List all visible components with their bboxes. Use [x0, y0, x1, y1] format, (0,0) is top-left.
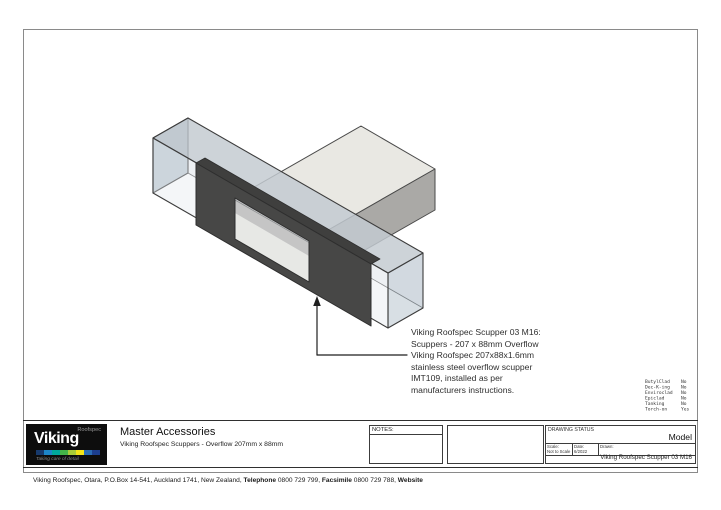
annotation-line: stainless steel overflow scupper — [411, 362, 581, 374]
drawn-label: Drawn: — [600, 445, 695, 450]
notes-box: NOTES: — [369, 425, 443, 464]
date-value: 6/2022 — [574, 449, 599, 454]
drawing-status-box: DRAWING STATUS Model Scale: Not to Scale… — [545, 425, 696, 464]
logo-color-swatch — [36, 450, 44, 455]
title-block: Roofspec Viking Taking care of detail Ma… — [23, 420, 698, 468]
annotation-line: manufacturers instructions. — [411, 385, 581, 397]
footer-address: Viking Roofspec, Otara, P.O.Box 14-541, … — [33, 477, 242, 484]
annotation-callout: Viking Roofspec Scupper 03 M16: Scuppers… — [411, 327, 581, 397]
logo-roofspec-text: Roofspec — [77, 427, 101, 433]
logo-tagline: Taking care of detail — [36, 457, 79, 462]
logo-color-swatch — [76, 450, 84, 455]
date-cell: Date: 6/2022 — [573, 444, 599, 455]
drawing-status-value: Model — [669, 432, 692, 442]
logo-color-swatch — [92, 450, 100, 455]
logo-color-swatch — [84, 450, 92, 455]
logo-color-swatch — [44, 450, 52, 455]
logo-color-swatch — [68, 450, 76, 455]
annotation-line: IMT109, installed as per — [411, 373, 581, 385]
product-title: Master Accessories — [120, 426, 283, 438]
footer-website-label: Website — [398, 477, 423, 484]
drawing-status-row: DRAWING STATUS Model — [546, 426, 695, 444]
leader-arrowhead-icon — [313, 296, 321, 306]
empty-cell-box — [447, 425, 544, 464]
annotation-line: Viking Roofspec Scupper 03 M16: — [411, 327, 581, 339]
membrane-compatibility-list: ButylClad No Dec-K-ing No Enviroclad No … — [645, 379, 697, 412]
footer-fax: 0800 729 788, — [354, 477, 396, 484]
footer-fax-label: Facsimile — [322, 477, 352, 484]
logo-color-swatch — [52, 450, 60, 455]
footer-phone-label: Telephone — [244, 477, 276, 484]
logo-color-swatch — [60, 450, 68, 455]
spec-name: Torch-on — [645, 407, 681, 413]
doc-code-row: Viking Roofspec Scupper 03 M16 — [546, 456, 695, 463]
footer-contact-line: Viking Roofspec, Otara, P.O.Box 14-541, … — [33, 477, 423, 484]
drawing-status-label: DRAWING STATUS — [548, 427, 594, 433]
viking-logo: Roofspec Viking Taking care of detail — [26, 424, 107, 465]
product-subtitle: Viking Roofspec Scuppers - Overflow 207m… — [120, 441, 283, 448]
doc-code: Viking Roofspec Scupper 03 M16 — [600, 454, 692, 461]
footer-phone: 0800 729 799, — [278, 477, 320, 484]
scale-value: Not to Scale — [547, 449, 573, 454]
notes-label: NOTES: — [370, 426, 442, 435]
logo-color-strip — [36, 450, 100, 455]
drawing-sheet: Viking Roofspec Scupper 03 M16: Scuppers… — [0, 0, 721, 510]
annotation-line: Scuppers - 207 x 88mm Overflow — [411, 339, 581, 351]
spec-row: Torch-on Yes — [645, 407, 697, 413]
annotation-line: Viking Roofspec 207x88x1.6mm — [411, 350, 581, 362]
scale-cell: Scale: Not to Scale — [546, 444, 573, 455]
logo-brand-text: Viking — [34, 430, 79, 448]
product-heading: Master Accessories Viking Roofspec Scupp… — [120, 426, 283, 448]
spec-value: Yes — [681, 407, 697, 413]
